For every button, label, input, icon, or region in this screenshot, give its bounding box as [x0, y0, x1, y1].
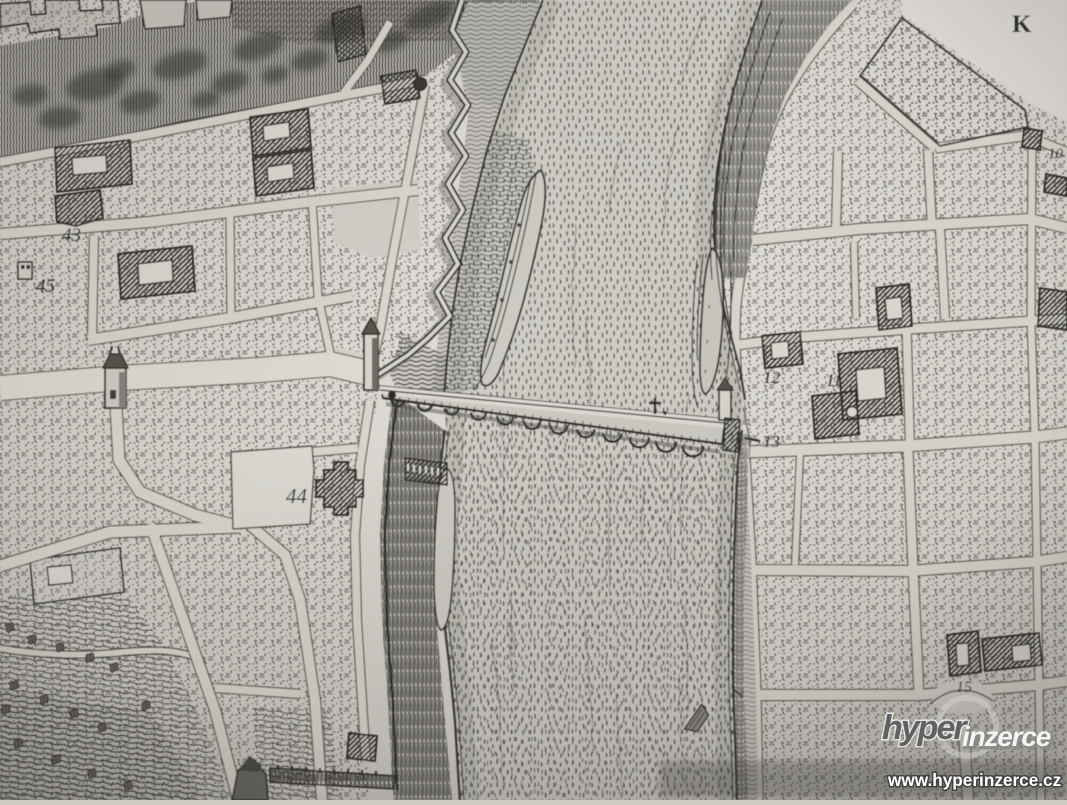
- svg-text:hyper: hyper: [882, 709, 968, 747]
- svg-text:www.hyperinzerce.cz: www.hyperinzerce.cz: [887, 770, 1061, 790]
- svg-text:inzerce: inzerce: [962, 721, 1051, 752]
